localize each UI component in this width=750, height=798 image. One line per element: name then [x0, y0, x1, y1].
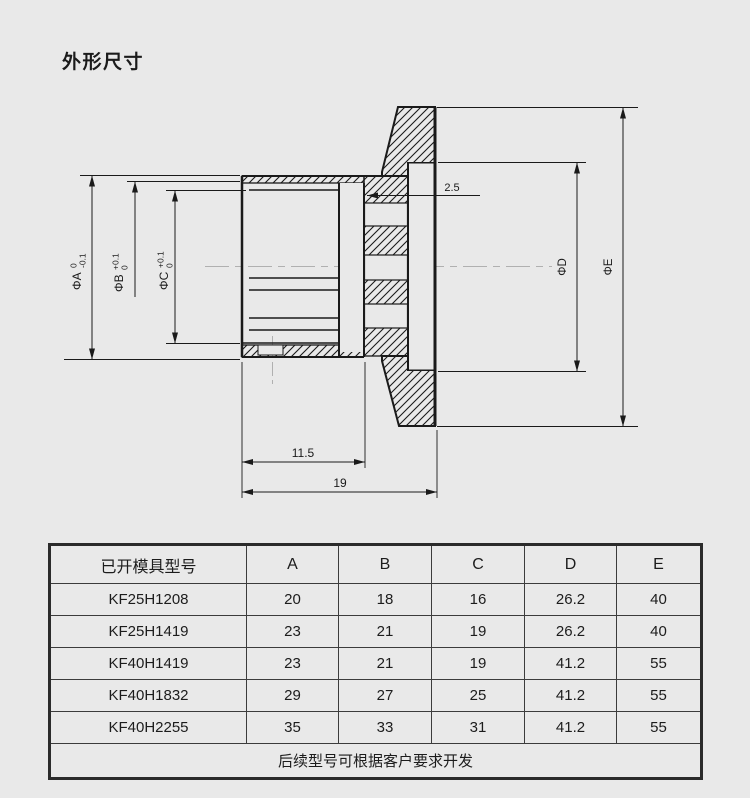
value-cell: 41.2: [525, 648, 617, 680]
value-cell: 55: [617, 648, 702, 680]
model-cell: KF40H2255: [50, 712, 247, 744]
dim-groove-width-label: 2.5: [444, 182, 459, 194]
table-footer-row: 后续型号可根据客户要求开发: [50, 744, 702, 779]
col-header-c: C: [432, 545, 525, 584]
svg-text:-0.1: -0.1: [78, 253, 88, 268]
model-cell: KF40H1419: [50, 648, 247, 680]
svg-text:ΦA: ΦA: [70, 272, 84, 290]
value-cell: 41.2: [525, 712, 617, 744]
value-cell: 19: [432, 616, 525, 648]
col-header-d: D: [525, 545, 617, 584]
value-cell: 16: [432, 584, 525, 616]
col-header-b: B: [339, 545, 432, 584]
value-cell: 40: [617, 616, 702, 648]
model-cell: KF40H1832: [50, 680, 247, 712]
table-row: KF40H1832 29 27 25 41.2 55: [50, 680, 702, 712]
value-cell: 25: [432, 680, 525, 712]
value-cell: 18: [339, 584, 432, 616]
svg-text:ΦC: ΦC: [157, 271, 171, 290]
value-cell: 21: [339, 616, 432, 648]
value-cell: 19: [432, 648, 525, 680]
model-cell: KF25H1419: [50, 616, 247, 648]
value-cell: 23: [247, 616, 339, 648]
value-cell: 29: [247, 680, 339, 712]
value-cell: 26.2: [525, 616, 617, 648]
table-header-row: 已开模具型号 A B C D E: [50, 545, 702, 584]
svg-text:0: 0: [120, 265, 130, 270]
dim-hub-length-label: 11.5: [292, 446, 315, 460]
svg-text:ΦB: ΦB: [112, 274, 126, 292]
outline-dimension-drawing: ΦA 0 -0.1 ΦB +0.1 0 ΦC +0.1 0 ΦD ΦE 2.5 …: [0, 0, 750, 530]
dim-phi-c-label: ΦC +0.1 0: [156, 251, 175, 290]
value-cell: 33: [339, 712, 432, 744]
dim-phi-b-label: ΦB +0.1 0: [111, 253, 130, 292]
model-cell: KF25H1208: [50, 584, 247, 616]
col-header-e: E: [617, 545, 702, 584]
table-footer-note: 后续型号可根据客户要求开发: [50, 744, 702, 779]
dim-phi-a-label: ΦA 0 -0.1: [69, 253, 88, 290]
table-row: KF25H1419 23 21 19 26.2 40: [50, 616, 702, 648]
table-row: KF40H2255 35 33 31 41.2 55: [50, 712, 702, 744]
col-header-model: 已开模具型号: [50, 545, 247, 584]
table-row: KF25H1208 20 18 16 26.2 40: [50, 584, 702, 616]
dim-total-length-label: 19: [333, 476, 347, 490]
page: 外形尺寸: [0, 0, 750, 798]
svg-text:0: 0: [165, 263, 175, 268]
mold-models-table: 已开模具型号 A B C D E KF25H1208 20 18 16 26.2…: [48, 543, 703, 780]
value-cell: 35: [247, 712, 339, 744]
value-cell: 27: [339, 680, 432, 712]
value-cell: 21: [339, 648, 432, 680]
value-cell: 23: [247, 648, 339, 680]
value-cell: 20: [247, 584, 339, 616]
value-cell: 55: [617, 680, 702, 712]
value-cell: 26.2: [525, 584, 617, 616]
value-cell: 55: [617, 712, 702, 744]
value-cell: 40: [617, 584, 702, 616]
dim-phi-e-label: ΦE: [603, 258, 615, 275]
table-row: KF40H1419 23 21 19 41.2 55: [50, 648, 702, 680]
col-header-a: A: [247, 545, 339, 584]
value-cell: 31: [432, 712, 525, 744]
dim-phi-d-label: ΦD: [557, 258, 569, 275]
value-cell: 41.2: [525, 680, 617, 712]
